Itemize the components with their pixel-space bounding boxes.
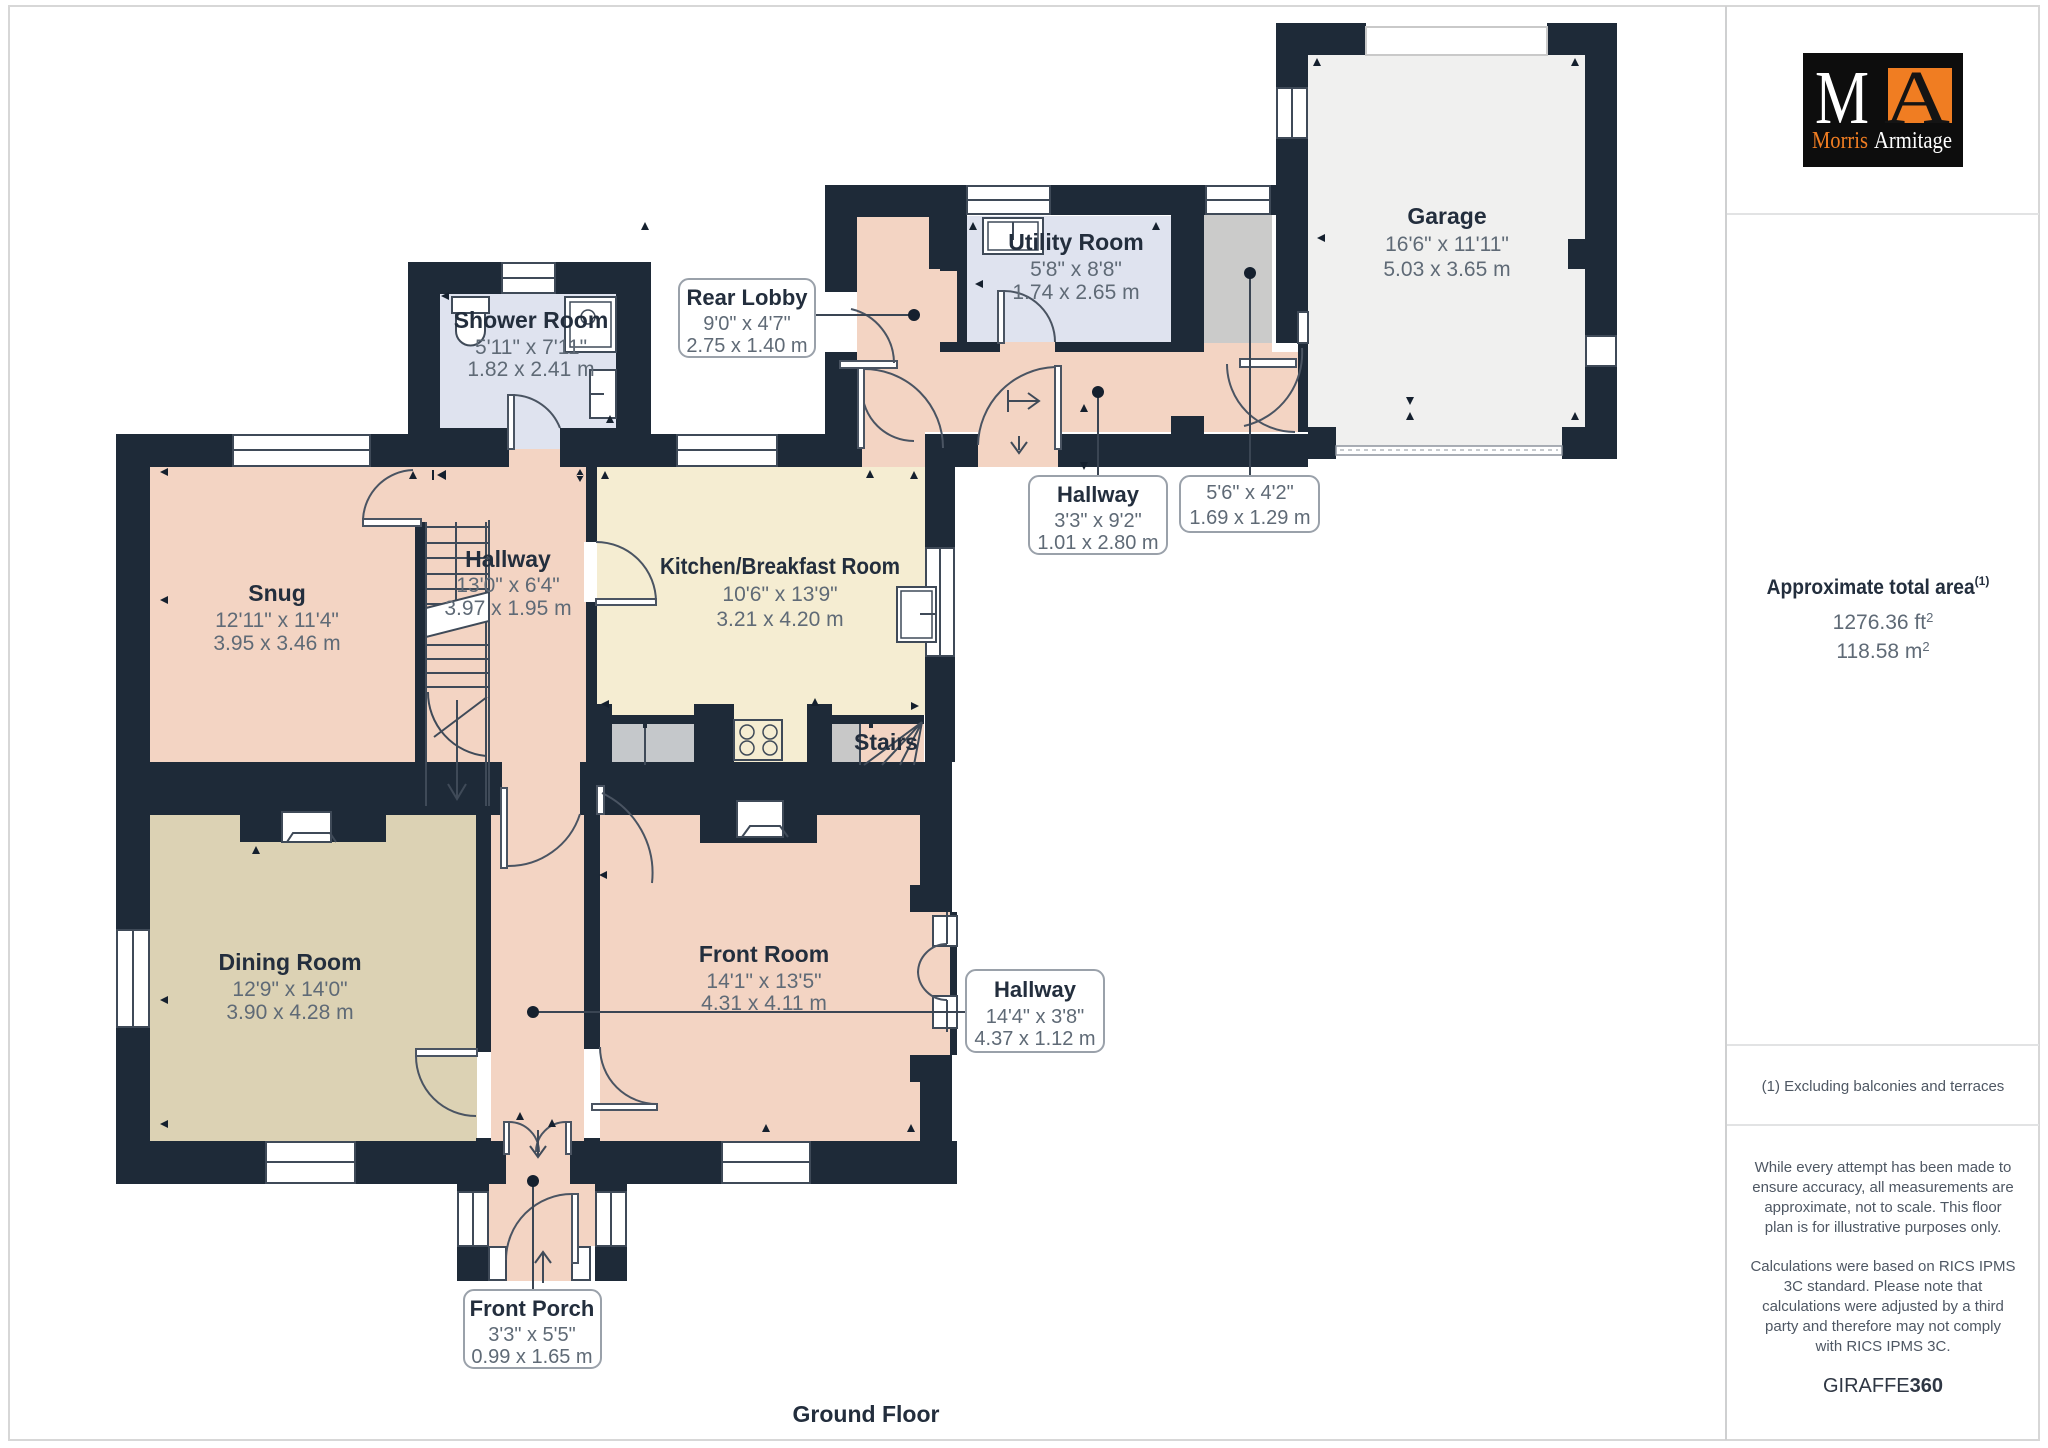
svg-text:5'6" x 4'2": 5'6" x 4'2" [1206, 482, 1293, 504]
svg-text:While every attempt has been m: While every attempt has been made to [1755, 1159, 2012, 1176]
svg-text:16'6" x 11'11": 16'6" x 11'11" [1385, 233, 1509, 256]
svg-text:Utility Room: Utility Room [1008, 229, 1143, 255]
svg-text:Snug: Snug [248, 580, 306, 606]
svg-text:Calculations were based on RIC: Calculations were based on RICS IPMS [1750, 1258, 2015, 1275]
svg-text:1276.36 ft2: 1276.36 ft2 [1833, 610, 1934, 634]
svg-text:13'0" x 6'4": 13'0" x 6'4" [456, 574, 560, 597]
svg-text:9'0" x 4'7": 9'0" x 4'7" [703, 313, 790, 335]
svg-text:Hallway: Hallway [994, 977, 1077, 1002]
svg-text:14'4" x 3'8": 14'4" x 3'8" [986, 1006, 1085, 1028]
svg-text:118.58 m2: 118.58 m2 [1836, 639, 1929, 663]
svg-text:Morris: Morris [1812, 128, 1868, 154]
svg-text:Hallway: Hallway [465, 546, 551, 572]
svg-text:plan is for illustrative purpo: plan is for illustrative purposes only. [1765, 1219, 2002, 1236]
svg-text:1.01 x 2.80 m: 1.01 x 2.80 m [1037, 532, 1158, 554]
svg-text:Hallway: Hallway [1057, 482, 1140, 507]
svg-text:Approximate total area(1): Approximate total area(1) [1767, 574, 1990, 599]
svg-text:3.97 x 1.95 m: 3.97 x 1.95 m [444, 597, 571, 620]
svg-text:with RICS IPMS 3C.: with RICS IPMS 3C. [1814, 1338, 1950, 1355]
svg-text:12'9" x 14'0": 12'9" x 14'0" [232, 978, 347, 1001]
svg-text:Garage: Garage [1407, 203, 1486, 229]
svg-text:1.69 x 1.29 m: 1.69 x 1.29 m [1189, 507, 1310, 529]
svg-text:0.99 x 1.65 m: 0.99 x 1.65 m [471, 1346, 592, 1368]
svg-text:ensure accuracy, all measureme: ensure accuracy, all measurements are [1752, 1179, 2014, 1196]
svg-text:party and therefore may not co: party and therefore may not comply [1765, 1318, 2001, 1335]
svg-text:5'11" x 7'11": 5'11" x 7'11" [475, 336, 587, 359]
svg-text:GIRAFFE360: GIRAFFE360 [1823, 1375, 1943, 1397]
svg-text:5.03 x 3.65 m: 5.03 x 3.65 m [1383, 258, 1510, 281]
svg-text:(1) Excluding balconies and te: (1) Excluding balconies and terraces [1762, 1078, 2005, 1095]
svg-text:12'11" x 11'4": 12'11" x 11'4" [215, 609, 339, 632]
svg-text:10'6" x 13'9": 10'6" x 13'9" [722, 583, 837, 606]
svg-text:3'3" x 9'2": 3'3" x 9'2" [1054, 510, 1141, 532]
svg-text:14'1" x 13'5": 14'1" x 13'5" [706, 970, 821, 993]
svg-text:Front Room: Front Room [699, 941, 829, 967]
svg-text:Kitchen/Breakfast Room: Kitchen/Breakfast Room [660, 553, 900, 579]
svg-text:Ground Floor: Ground Floor [793, 1401, 940, 1427]
svg-text:5'8" x 8'8": 5'8" x 8'8" [1030, 258, 1122, 281]
svg-text:3C standard. Please note that: 3C standard. Please note that [1784, 1278, 1983, 1295]
svg-text:calculations were adjusted by: calculations were adjusted by a third [1762, 1298, 2004, 1315]
svg-text:1.74 x 2.65 m: 1.74 x 2.65 m [1012, 281, 1139, 304]
svg-text:Shower Room: Shower Room [454, 307, 609, 333]
svg-text:3.90 x 4.28 m: 3.90 x 4.28 m [226, 1001, 353, 1024]
svg-text:3.95 x 3.46 m: 3.95 x 3.46 m [213, 632, 340, 655]
svg-text:Dining Room: Dining Room [218, 949, 361, 975]
svg-text:2.75 x 1.40 m: 2.75 x 1.40 m [686, 335, 807, 357]
svg-text:1.82 x 2.41 m: 1.82 x 2.41 m [467, 358, 594, 381]
svg-text:Front Porch: Front Porch [470, 1296, 595, 1321]
svg-text:3'3" x 5'5": 3'3" x 5'5" [488, 1324, 575, 1346]
svg-text:approximate, not to scale. Thi: approximate, not to scale. This floor [1764, 1199, 2001, 1216]
svg-text:3.21 x 4.20 m: 3.21 x 4.20 m [716, 608, 843, 631]
svg-text:4.37 x 1.12 m: 4.37 x 1.12 m [974, 1028, 1095, 1050]
svg-text:Rear Lobby: Rear Lobby [686, 285, 808, 310]
svg-text:Stairs: Stairs [854, 729, 918, 755]
svg-text:Armitage: Armitage [1874, 128, 1952, 154]
